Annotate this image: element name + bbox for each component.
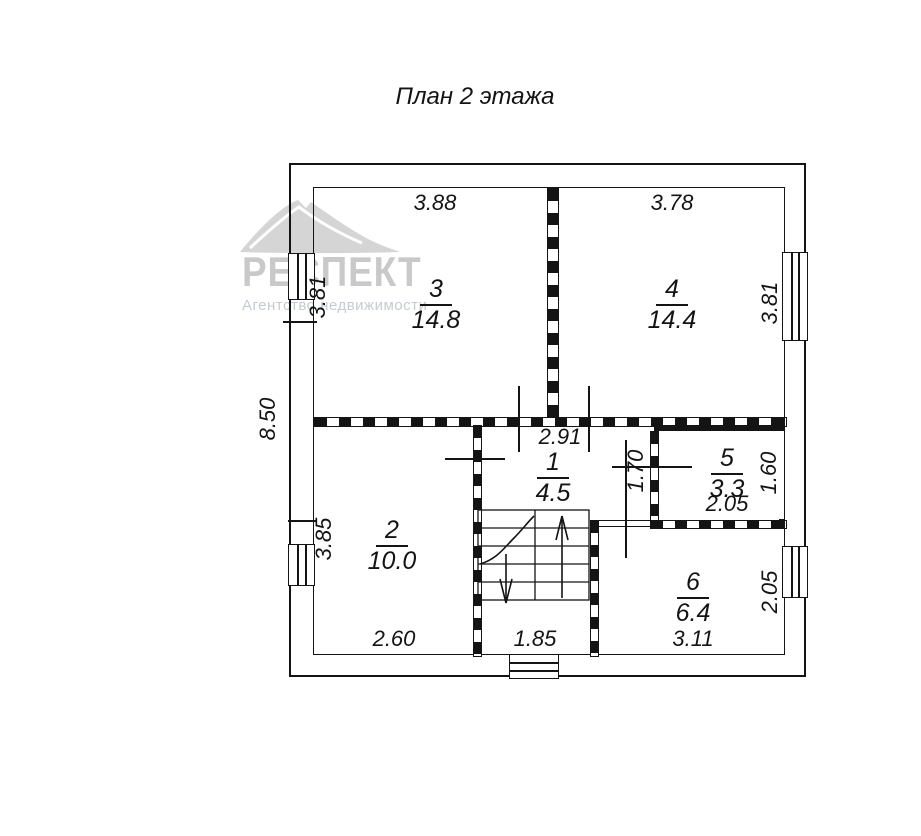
- room-number: 5: [711, 446, 743, 475]
- window-right-upper: [782, 252, 808, 341]
- wall-room5-room6: [650, 520, 787, 529]
- dim-room5-width: 2.05: [690, 493, 764, 515]
- dim-stair-bay-width: 1.85: [504, 628, 566, 650]
- floor-plan-canvas: План 2 этажа РЕСПЕКТ Агентство недвижимо…: [0, 0, 921, 836]
- dim-room4-width: 3.78: [630, 192, 714, 214]
- room-label-1: 1 4.5: [514, 450, 592, 506]
- dim-room6-height: 2.05: [759, 560, 781, 624]
- dim-room2-height: 3.85: [313, 507, 335, 571]
- room-area: 14.8: [394, 308, 478, 333]
- dim-room6-width: 3.11: [655, 628, 731, 650]
- window-bottom: [509, 654, 559, 679]
- room-area: 4.5: [514, 481, 592, 506]
- dim-overall-height: 8.50: [257, 387, 279, 451]
- dim-hall-width: 2.91: [523, 426, 597, 448]
- dim-room4-height: 3.81: [759, 271, 781, 335]
- partition-room3-room4: [547, 188, 559, 420]
- room-label-6: 6 6.4: [652, 570, 734, 626]
- window-right-lower: [782, 546, 808, 598]
- dim-line-hall-left: [445, 458, 505, 460]
- dim-room3-width: 3.88: [393, 192, 477, 214]
- room-area: 10.0: [350, 549, 434, 574]
- room-number: 6: [677, 570, 709, 599]
- dim-extension-line: [518, 386, 520, 452]
- room-number: 2: [376, 518, 408, 547]
- room-number: 4: [656, 277, 688, 306]
- plan-title: План 2 этажа: [360, 83, 590, 111]
- room-label-2: 2 10.0: [350, 518, 434, 574]
- wall-room5-top-solid: [654, 425, 785, 431]
- wall-junction-block: [779, 519, 785, 528]
- wall-hall-room5: [650, 431, 659, 522]
- room-label-3: 3 14.8: [394, 277, 478, 333]
- dim-room3-height: 3.81: [307, 265, 329, 329]
- dim-hall-height: 1.70: [625, 439, 647, 503]
- room-label-4: 4 14.4: [630, 277, 714, 333]
- dim-room2-width: 2.60: [357, 628, 431, 650]
- room-number: 3: [420, 277, 452, 306]
- stairs-down-arrow-icon: [500, 554, 512, 603]
- stairs-break-line: [480, 516, 534, 564]
- wall-junction-block: [779, 417, 785, 425]
- room-area: 14.4: [630, 308, 714, 333]
- room-number: 1: [537, 450, 569, 479]
- dim-room5-height: 1.60: [758, 441, 780, 505]
- door-opening-room6: [597, 520, 650, 527]
- room-area: 6.4: [652, 601, 734, 626]
